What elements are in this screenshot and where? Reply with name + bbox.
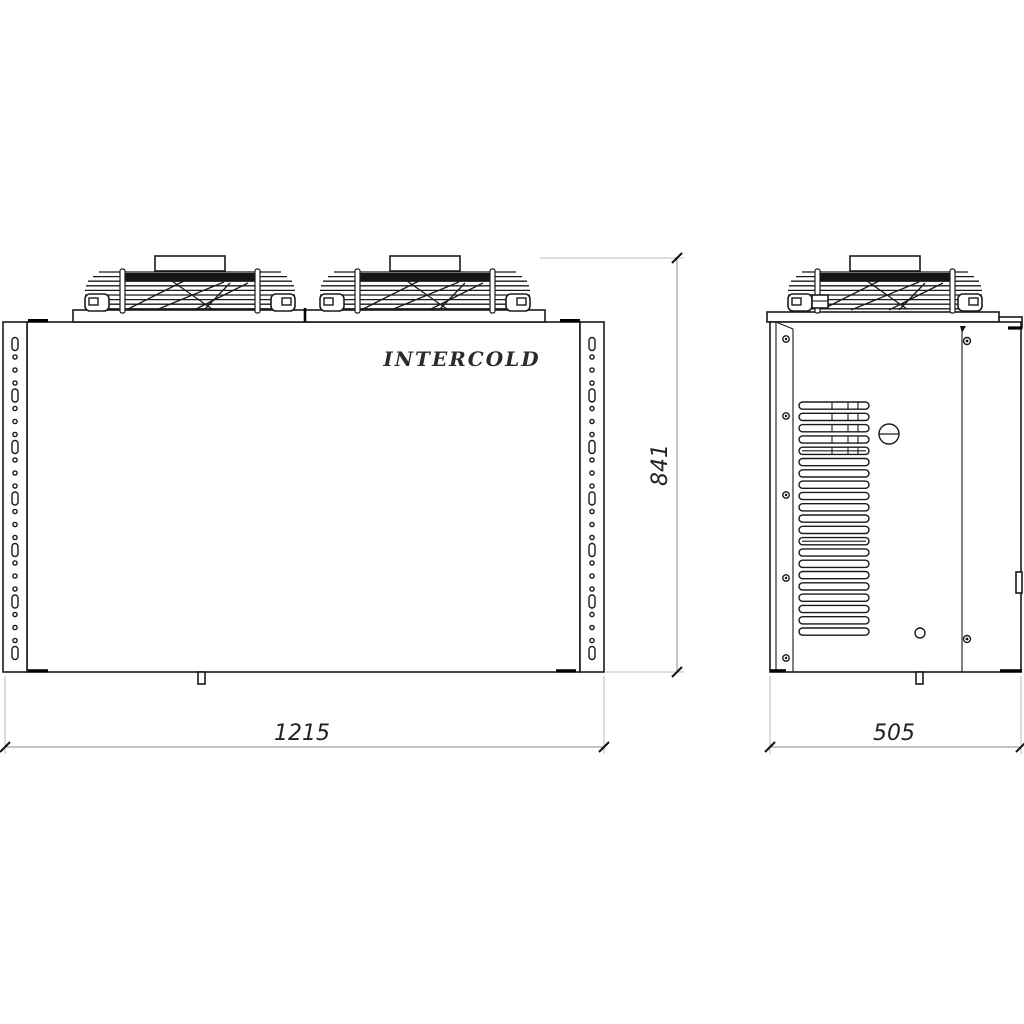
screw-center	[966, 638, 969, 641]
condensing-unit-drawing: INTERCOLD	[0, 0, 1024, 1024]
fan-shroud-band	[359, 273, 491, 281]
height-dimension-value: 841	[648, 444, 673, 486]
fan-support-rod	[255, 269, 260, 313]
fan-blade-line	[899, 283, 925, 310]
depth-dimension-value: 505	[873, 721, 915, 746]
fan-blade-line	[889, 283, 943, 310]
screw-center	[785, 494, 787, 496]
side-top-plate	[767, 312, 999, 322]
fan-support-rod	[950, 269, 955, 313]
fan-assembly	[85, 256, 295, 313]
fan-motor-box	[850, 256, 920, 271]
fan-support-rod	[355, 269, 360, 313]
front-view: INTERCOLD	[3, 308, 604, 684]
fan-blade-line	[439, 283, 465, 310]
fan-support-rod	[490, 269, 495, 313]
width-dimension-value: 1215	[274, 721, 330, 746]
fan-deck-plate	[73, 310, 545, 322]
side-view	[767, 312, 1022, 684]
mounting-bracket-right	[580, 322, 604, 672]
fan-motor-box	[155, 256, 225, 271]
technical-drawing-canvas: INTERCOLD	[0, 0, 1024, 1024]
screw-center	[785, 415, 787, 417]
fan-shroud-band	[819, 273, 951, 281]
screw-center	[785, 577, 787, 579]
screw-center	[785, 338, 787, 340]
drain-stub-side	[916, 672, 923, 684]
front-cabinet-panel	[27, 322, 580, 672]
fan-assembly	[320, 256, 530, 313]
screw-center	[785, 657, 787, 659]
fan-blade-line	[429, 283, 483, 310]
mounting-bracket-left	[3, 322, 27, 672]
fan-shroud-band	[124, 273, 256, 281]
handle-notch	[1016, 572, 1022, 593]
fan-blade-line	[204, 283, 230, 310]
fan-support-rod	[120, 269, 125, 313]
drain-stub-front	[198, 672, 205, 684]
screw-center	[966, 340, 969, 343]
fan-blade-line	[194, 283, 248, 310]
fan-assembly	[788, 256, 982, 313]
fan-assemblies	[85, 256, 982, 313]
brand-logo: INTERCOLD	[382, 347, 540, 371]
fan-motor-box	[390, 256, 460, 271]
side-cabinet-panel	[770, 322, 1021, 672]
